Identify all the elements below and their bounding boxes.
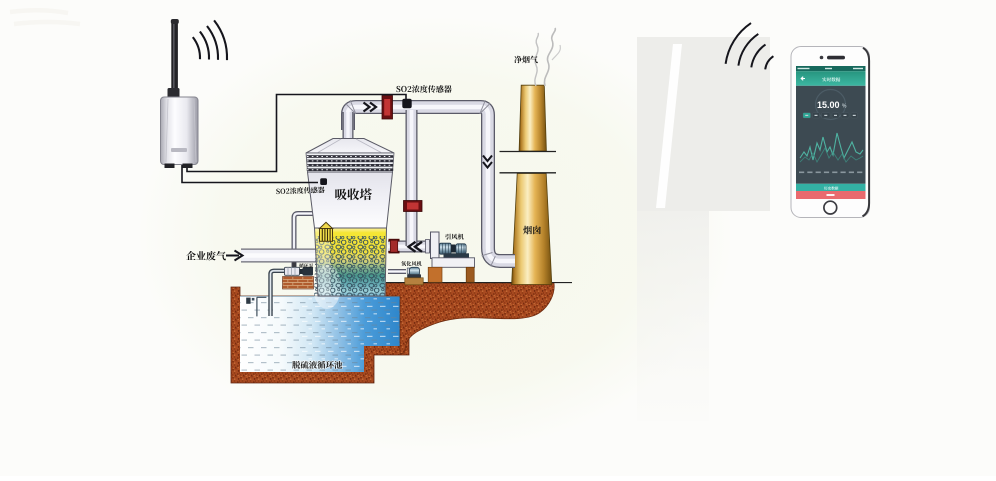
svg-text:15.00: 15.00 (817, 100, 840, 110)
svg-text:%: % (842, 104, 847, 110)
